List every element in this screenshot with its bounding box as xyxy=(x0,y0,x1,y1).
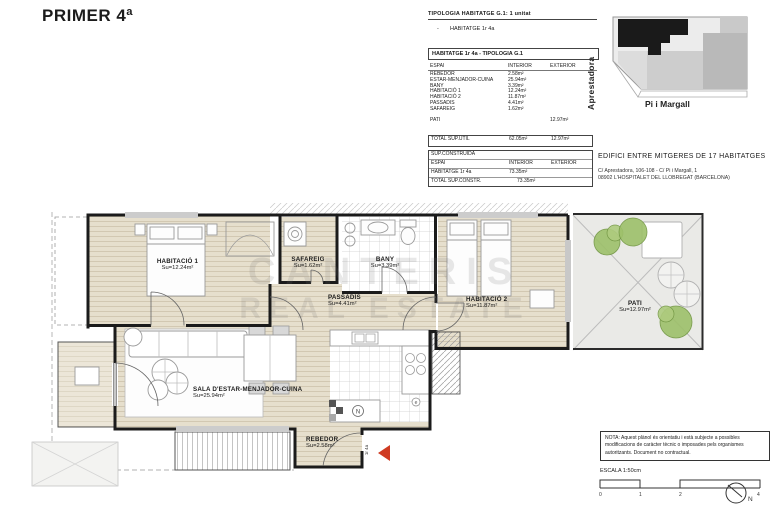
map-section xyxy=(720,17,747,33)
room-label-pati: PATI Su=12.97m² xyxy=(605,300,665,313)
toilet-tank xyxy=(400,220,416,227)
constructed-total-row: TOTAL SUP.CONSTR. 73.35m² xyxy=(429,178,592,186)
column xyxy=(336,407,343,414)
window-sala-balcony xyxy=(176,426,289,432)
room-label-passadis: PASSADÍS Su=4.41m² xyxy=(328,294,398,307)
scale-tick: 2 xyxy=(679,492,682,498)
constructed-table: SUP.CONSTRUIDA ESPAI INTERIOR EXTERIOR H… xyxy=(428,150,593,187)
map-sidewalk xyxy=(638,91,747,97)
balcony-bottom xyxy=(175,432,290,470)
area-table-columns: ESPAI INTERIOR EXTERIOR xyxy=(428,63,597,71)
room-label-bany: BANY Su=3.39m² xyxy=(360,256,410,269)
pillow xyxy=(150,227,174,239)
window-hab2-pati xyxy=(565,240,571,322)
neighbor-terrace-dashed xyxy=(55,217,88,325)
street-label-aprestadora: Aprestadora xyxy=(586,14,596,110)
nightstand xyxy=(135,224,145,235)
entrance-arrow xyxy=(378,445,390,461)
map-section xyxy=(703,33,747,89)
window-hab2 xyxy=(458,212,538,218)
bush xyxy=(619,218,647,246)
col-interior: INTERIOR xyxy=(508,63,532,69)
constructed-columns: ESPAI INTERIOR EXTERIOR xyxy=(429,160,592,169)
typology-bullet: - xyxy=(437,26,439,32)
room-label-hab1: HABITACIÓ 1 Su=12.24m² xyxy=(140,258,215,271)
north-symbol-letter: N xyxy=(356,410,360,416)
scale-tick: 0 xyxy=(599,492,602,498)
nota-box: NOTA: Aquest plànol és orientatiu i està… xyxy=(600,431,770,461)
room-label-hab2: HABITACIÓ 2 Su=11.87m² xyxy=(466,296,546,309)
constructed-row: HABITATGE 1r 4a 73.35m² xyxy=(429,169,592,178)
furniture-safareig xyxy=(284,222,306,246)
pillow xyxy=(484,223,508,235)
side-table-round xyxy=(124,328,142,346)
constructed-title: SUP.CONSTRUIDA xyxy=(429,151,592,160)
kitchen-counter-top xyxy=(330,330,430,346)
total-util-row: TOTAL SUP.UTIL 62.05m² 12.97m² xyxy=(428,135,593,147)
col-exterior: EXTERIOR xyxy=(550,63,576,69)
building-address-1: C/ Aprestadora, 106-108 - C/ Pi i Margal… xyxy=(598,168,697,174)
table-row: SAFAREIG 1.62m² xyxy=(428,107,597,113)
room-label-sala: SALA D'ESTAR-MENJADOR-CUINA Su=25.94m² xyxy=(193,386,363,399)
typology-item: HABITATGE 1r 4a xyxy=(450,26,494,32)
entrance-door-label: 1r 4a xyxy=(364,444,369,455)
pati-lounge xyxy=(642,222,682,258)
column xyxy=(329,414,336,421)
room-label-safareig: SAFAREIG Su=1.62m² xyxy=(283,256,333,269)
compass-north-label: N xyxy=(748,496,753,503)
street-label-pi-i-margall: Pi i Margall xyxy=(645,99,690,109)
room-label-rebedor: REBEDOR Su=2.58m² xyxy=(306,436,361,449)
pillow xyxy=(450,223,474,235)
pillow xyxy=(178,227,202,239)
neighbor-patio-southwest xyxy=(32,442,118,486)
table-row-pati: PATI 12.97m² xyxy=(428,118,597,124)
map-section xyxy=(647,51,703,89)
window-hab1 xyxy=(125,212,198,218)
floorplan-document: PRIMER 4ª TIPOLOGIA HABITATGE G.1: 1 uni… xyxy=(0,0,770,510)
toilet xyxy=(401,228,415,245)
page-title: PRIMER 4ª xyxy=(42,6,133,26)
compass-needle xyxy=(728,485,742,497)
washing-machine xyxy=(284,222,306,246)
col-espai: ESPAI xyxy=(430,63,444,69)
electrical-symbol-letter: e xyxy=(415,400,418,406)
area-table-header: HABITATGE 1r 4a - TIPOLOGIA G.1 xyxy=(428,48,599,60)
scale-tick: 1 xyxy=(639,492,642,498)
location-map xyxy=(585,3,770,128)
window-sala-left xyxy=(112,363,118,406)
nightstand xyxy=(207,224,217,235)
north-compass: N xyxy=(718,477,768,509)
building-title: EDIFICI ENTRE MITGERES DE 17 HABITATGES xyxy=(598,153,765,160)
column xyxy=(329,400,336,407)
balcony-table xyxy=(75,367,99,385)
typology-header: TIPOLOGIA HABITATGE G.1: 1 unitat xyxy=(428,11,597,20)
building-address-2: 08902 L'HOSPITALET DEL LLOBREGAT (BARCEL… xyxy=(598,175,730,181)
